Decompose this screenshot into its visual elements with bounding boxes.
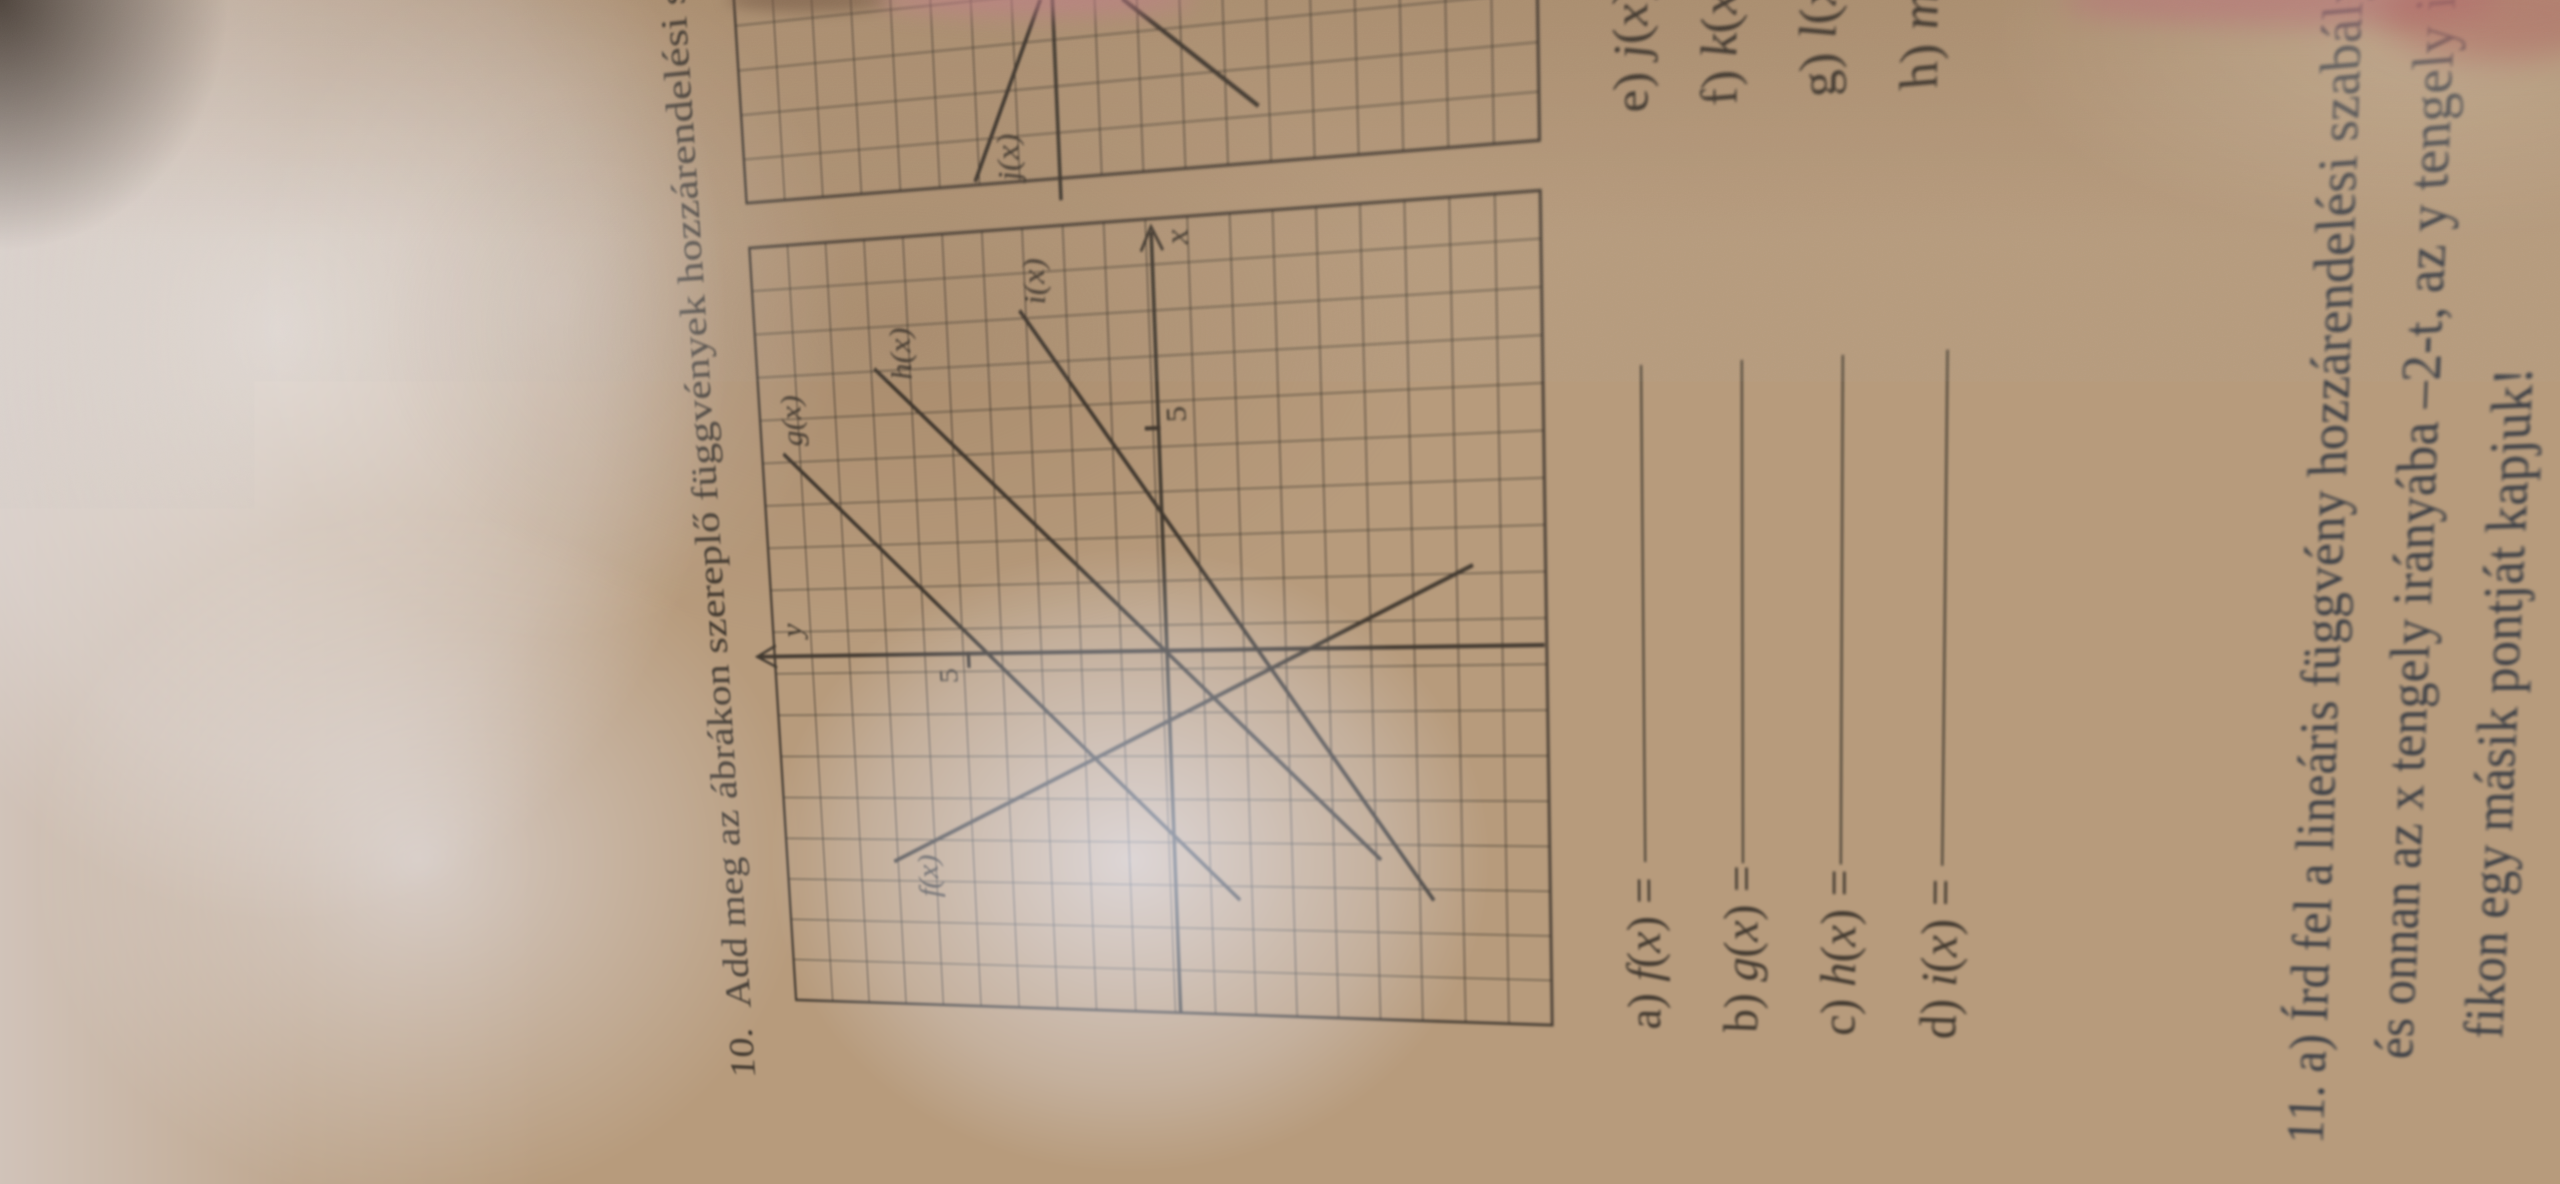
svg-text:j(x): j(x): [991, 132, 1026, 186]
svg-text:d) i(x) =: d) i(x) =: [1910, 878, 1969, 1040]
svg-text:i(x): i(x): [1017, 257, 1052, 306]
svg-text:5: 5: [934, 668, 965, 684]
svg-text:h(x): h(x): [884, 326, 918, 380]
svg-text:fikon egy másik pontját kapjuk: fikon egy másik pontját kapjuk!: [2452, 366, 2546, 1040]
svg-text:g) l(x) =: g) l(x) =: [1789, 0, 1848, 100]
svg-text:h) m(x) =: h) m(x) =: [1889, 0, 1951, 92]
svg-text:c) h(x) =: c) h(x) =: [1811, 869, 1867, 1037]
svg-text:f(x): f(x): [913, 854, 946, 897]
svg-text:g(x): g(x): [775, 394, 809, 447]
svg-text:b) g(x) =: b) g(x) =: [1714, 865, 1769, 1034]
svg-text:11. a) Írd fel a lineáris függ: 11. a) Írd fel a lineáris függvény hozzá…: [2275, 0, 2378, 1145]
svg-text:a) f(x) =: a) f(x) =: [1617, 877, 1671, 1030]
svg-text:5: 5: [1160, 405, 1193, 423]
svg-text:e) j(x) =: e) j(x) =: [1602, 0, 1659, 115]
svg-text:f) k(x) =: f) k(x) =: [1690, 0, 1748, 108]
